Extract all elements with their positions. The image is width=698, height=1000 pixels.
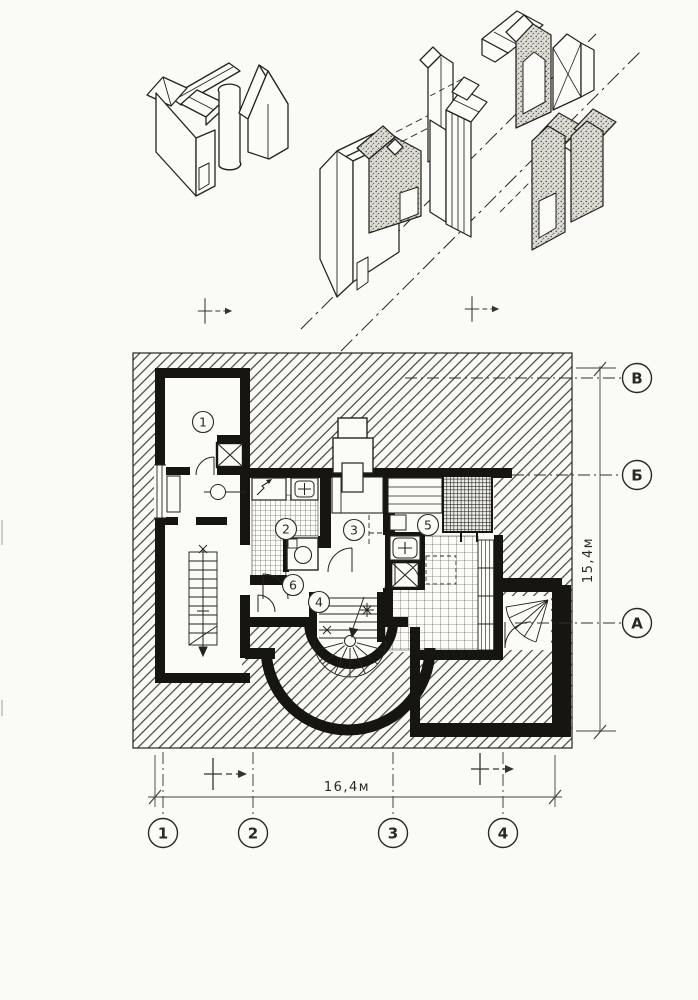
room-number: 6	[289, 577, 297, 592]
room-number: 5	[424, 517, 432, 532]
axis-number: 1	[158, 824, 168, 842]
door-slot	[357, 257, 368, 290]
architectural-drawing-sheet: 1 2 3 4 5 6	[0, 0, 698, 1000]
drawing-canvas: 1 2 3 4 5 6	[0, 0, 698, 1000]
room-label-5: 5	[418, 515, 439, 536]
room-number: 1	[199, 414, 207, 429]
orientation-arrow-icon	[471, 753, 514, 785]
axis-letter: В	[631, 369, 642, 387]
sink-icon	[390, 536, 420, 560]
shaded-slab-right	[571, 121, 603, 222]
dimension-label-width: 16,4м	[324, 780, 370, 795]
room-number: 2	[282, 521, 290, 536]
room-label-1: 1	[193, 412, 214, 433]
axis-bubble-3: 3	[379, 819, 408, 848]
window	[154, 465, 166, 518]
cylinder-volume	[218, 84, 240, 170]
shaft-box-icon	[217, 443, 243, 467]
axis-bubble-v: В	[623, 364, 652, 393]
stair-straight	[189, 545, 217, 656]
axis-number: 3	[388, 824, 398, 842]
stove-icon	[252, 478, 286, 500]
orientation-arrow-icon	[204, 758, 247, 790]
axis-number: 2	[248, 824, 258, 842]
axis-letter: Б	[631, 466, 642, 484]
room-number: 4	[315, 594, 323, 609]
washer-icon	[287, 538, 318, 570]
room-label-6: 6	[283, 575, 304, 596]
room-label-3: 3	[344, 520, 365, 541]
nightstand	[390, 515, 406, 530]
room-label-4: 4	[309, 592, 330, 613]
axis-letter: А	[631, 614, 643, 632]
room-label-2: 2	[276, 519, 297, 540]
axis-bubbles-numbers: 1 2 3 4	[149, 819, 518, 848]
axis-number: 4	[498, 824, 508, 842]
shelf-strip	[478, 540, 494, 650]
orientation-arrow-icon	[198, 298, 232, 324]
axis-bubble-1: 1	[149, 819, 178, 848]
axis-bubble-b: Б	[623, 461, 652, 490]
dimension-label-height: 15,4м	[581, 537, 596, 583]
sink-icon	[291, 478, 318, 500]
axis-bubble-4: 4	[489, 819, 518, 848]
floor-plan: 1 2 3 4 5 6	[133, 353, 572, 748]
white-house-front	[320, 151, 353, 297]
room-number: 3	[350, 522, 358, 537]
axis-bubble-2: 2	[239, 819, 268, 848]
axonometric-projection-right	[301, 11, 640, 351]
bed	[388, 478, 442, 513]
axis-bubble-a: А	[623, 609, 652, 638]
radiator	[167, 476, 180, 512]
center-tower-main	[446, 110, 471, 237]
axonometric-massing-left	[147, 63, 288, 196]
orientation-arrow-icon	[465, 296, 499, 322]
center-tower-back	[430, 120, 446, 222]
tiled-stove	[443, 476, 492, 542]
axis-bubbles-letters: В Б А	[623, 364, 652, 638]
